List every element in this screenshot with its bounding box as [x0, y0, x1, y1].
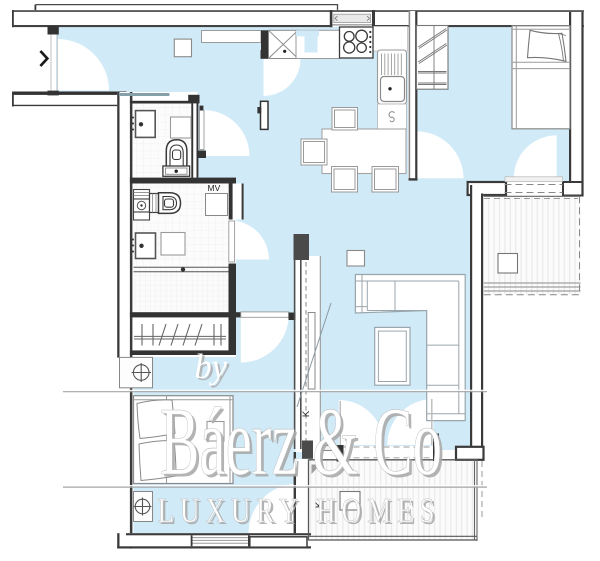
svg-text:Báerz & Co: Báerz & Co: [160, 388, 442, 495]
svg-text:MV: MV: [208, 183, 221, 193]
svg-text:LUXURY HOMES: LUXURY HOMES: [158, 491, 441, 530]
svg-text:by: by: [195, 348, 228, 386]
